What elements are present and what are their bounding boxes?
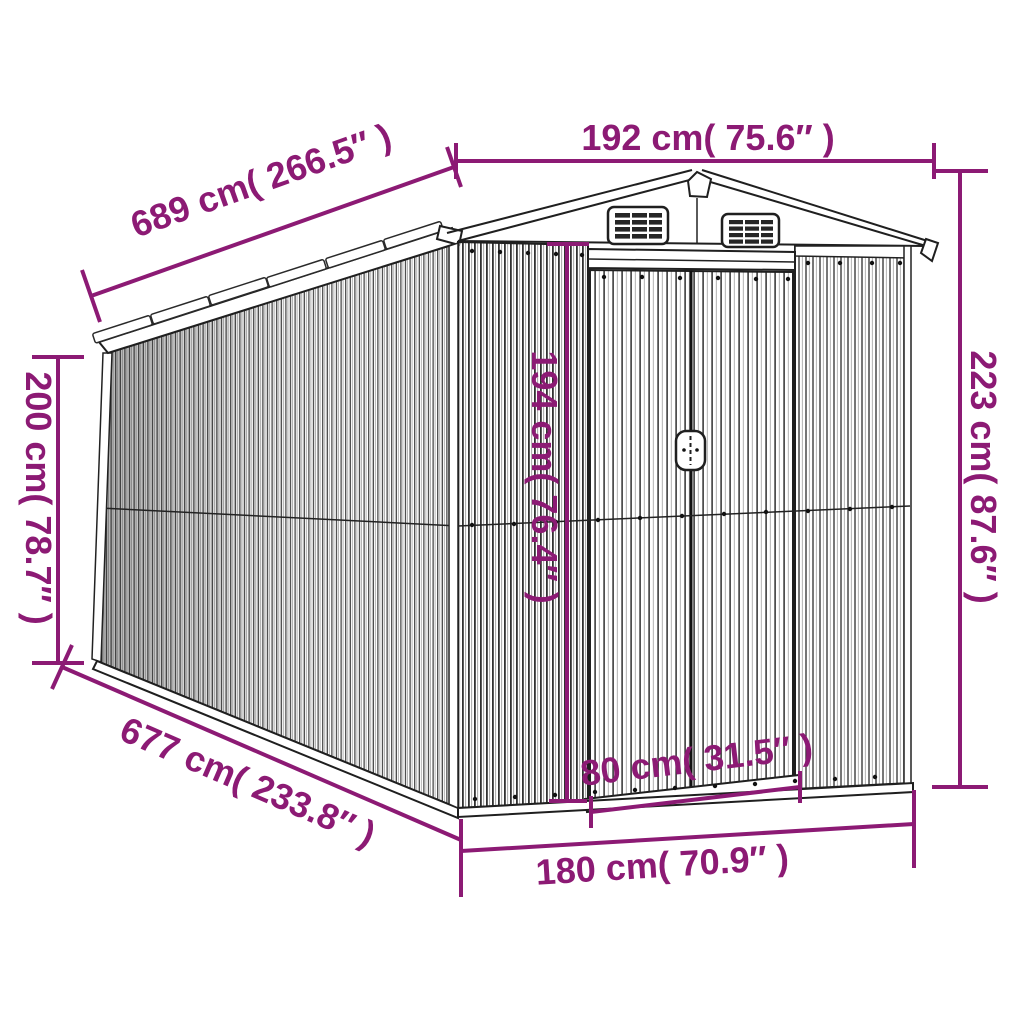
dim-label-total-height: 223 cm( 87.6″ ) <box>963 350 1004 603</box>
roof-apex-cap <box>688 172 711 197</box>
front-wall <box>449 242 913 817</box>
gable-vent-right <box>722 214 779 247</box>
dim-label-side-height: 200 cm( 78.7″ ) <box>18 371 59 624</box>
roof-right-fascia <box>921 239 938 261</box>
dim-label-door-height: 194 cm( 76.4″ ) <box>524 350 565 603</box>
door-handle <box>676 431 705 470</box>
door-left-leaf <box>590 270 691 801</box>
front-wall-right-section <box>795 246 910 789</box>
gable-vent-left <box>608 207 668 244</box>
dim-label-front-width: 192 cm( 75.6″ ) <box>581 117 834 158</box>
shed-drawing <box>92 170 938 818</box>
right-section-eave-trim <box>795 246 910 258</box>
front-left-corner-trim <box>449 243 458 808</box>
dim-label-roof-length: 689 cm( 266.5″ ) <box>125 115 396 245</box>
double-door <box>585 249 801 812</box>
diagram-svg: 192 cm( 75.6″ ) 689 cm( 266.5″ ) 200 cm(… <box>0 0 1024 1024</box>
dim-front-width: 192 cm( 75.6″ ) <box>456 117 934 179</box>
dim-total-height: 223 cm( 87.6″ ) <box>932 171 1004 787</box>
door-right-leaf <box>691 271 793 796</box>
front-right-corner-trim <box>904 246 911 784</box>
dim-side-height: 200 cm( 78.7″ ) <box>18 357 84 663</box>
shed-dimension-diagram: 192 cm( 75.6″ ) 689 cm( 266.5″ ) 200 cm(… <box>0 0 1024 1024</box>
